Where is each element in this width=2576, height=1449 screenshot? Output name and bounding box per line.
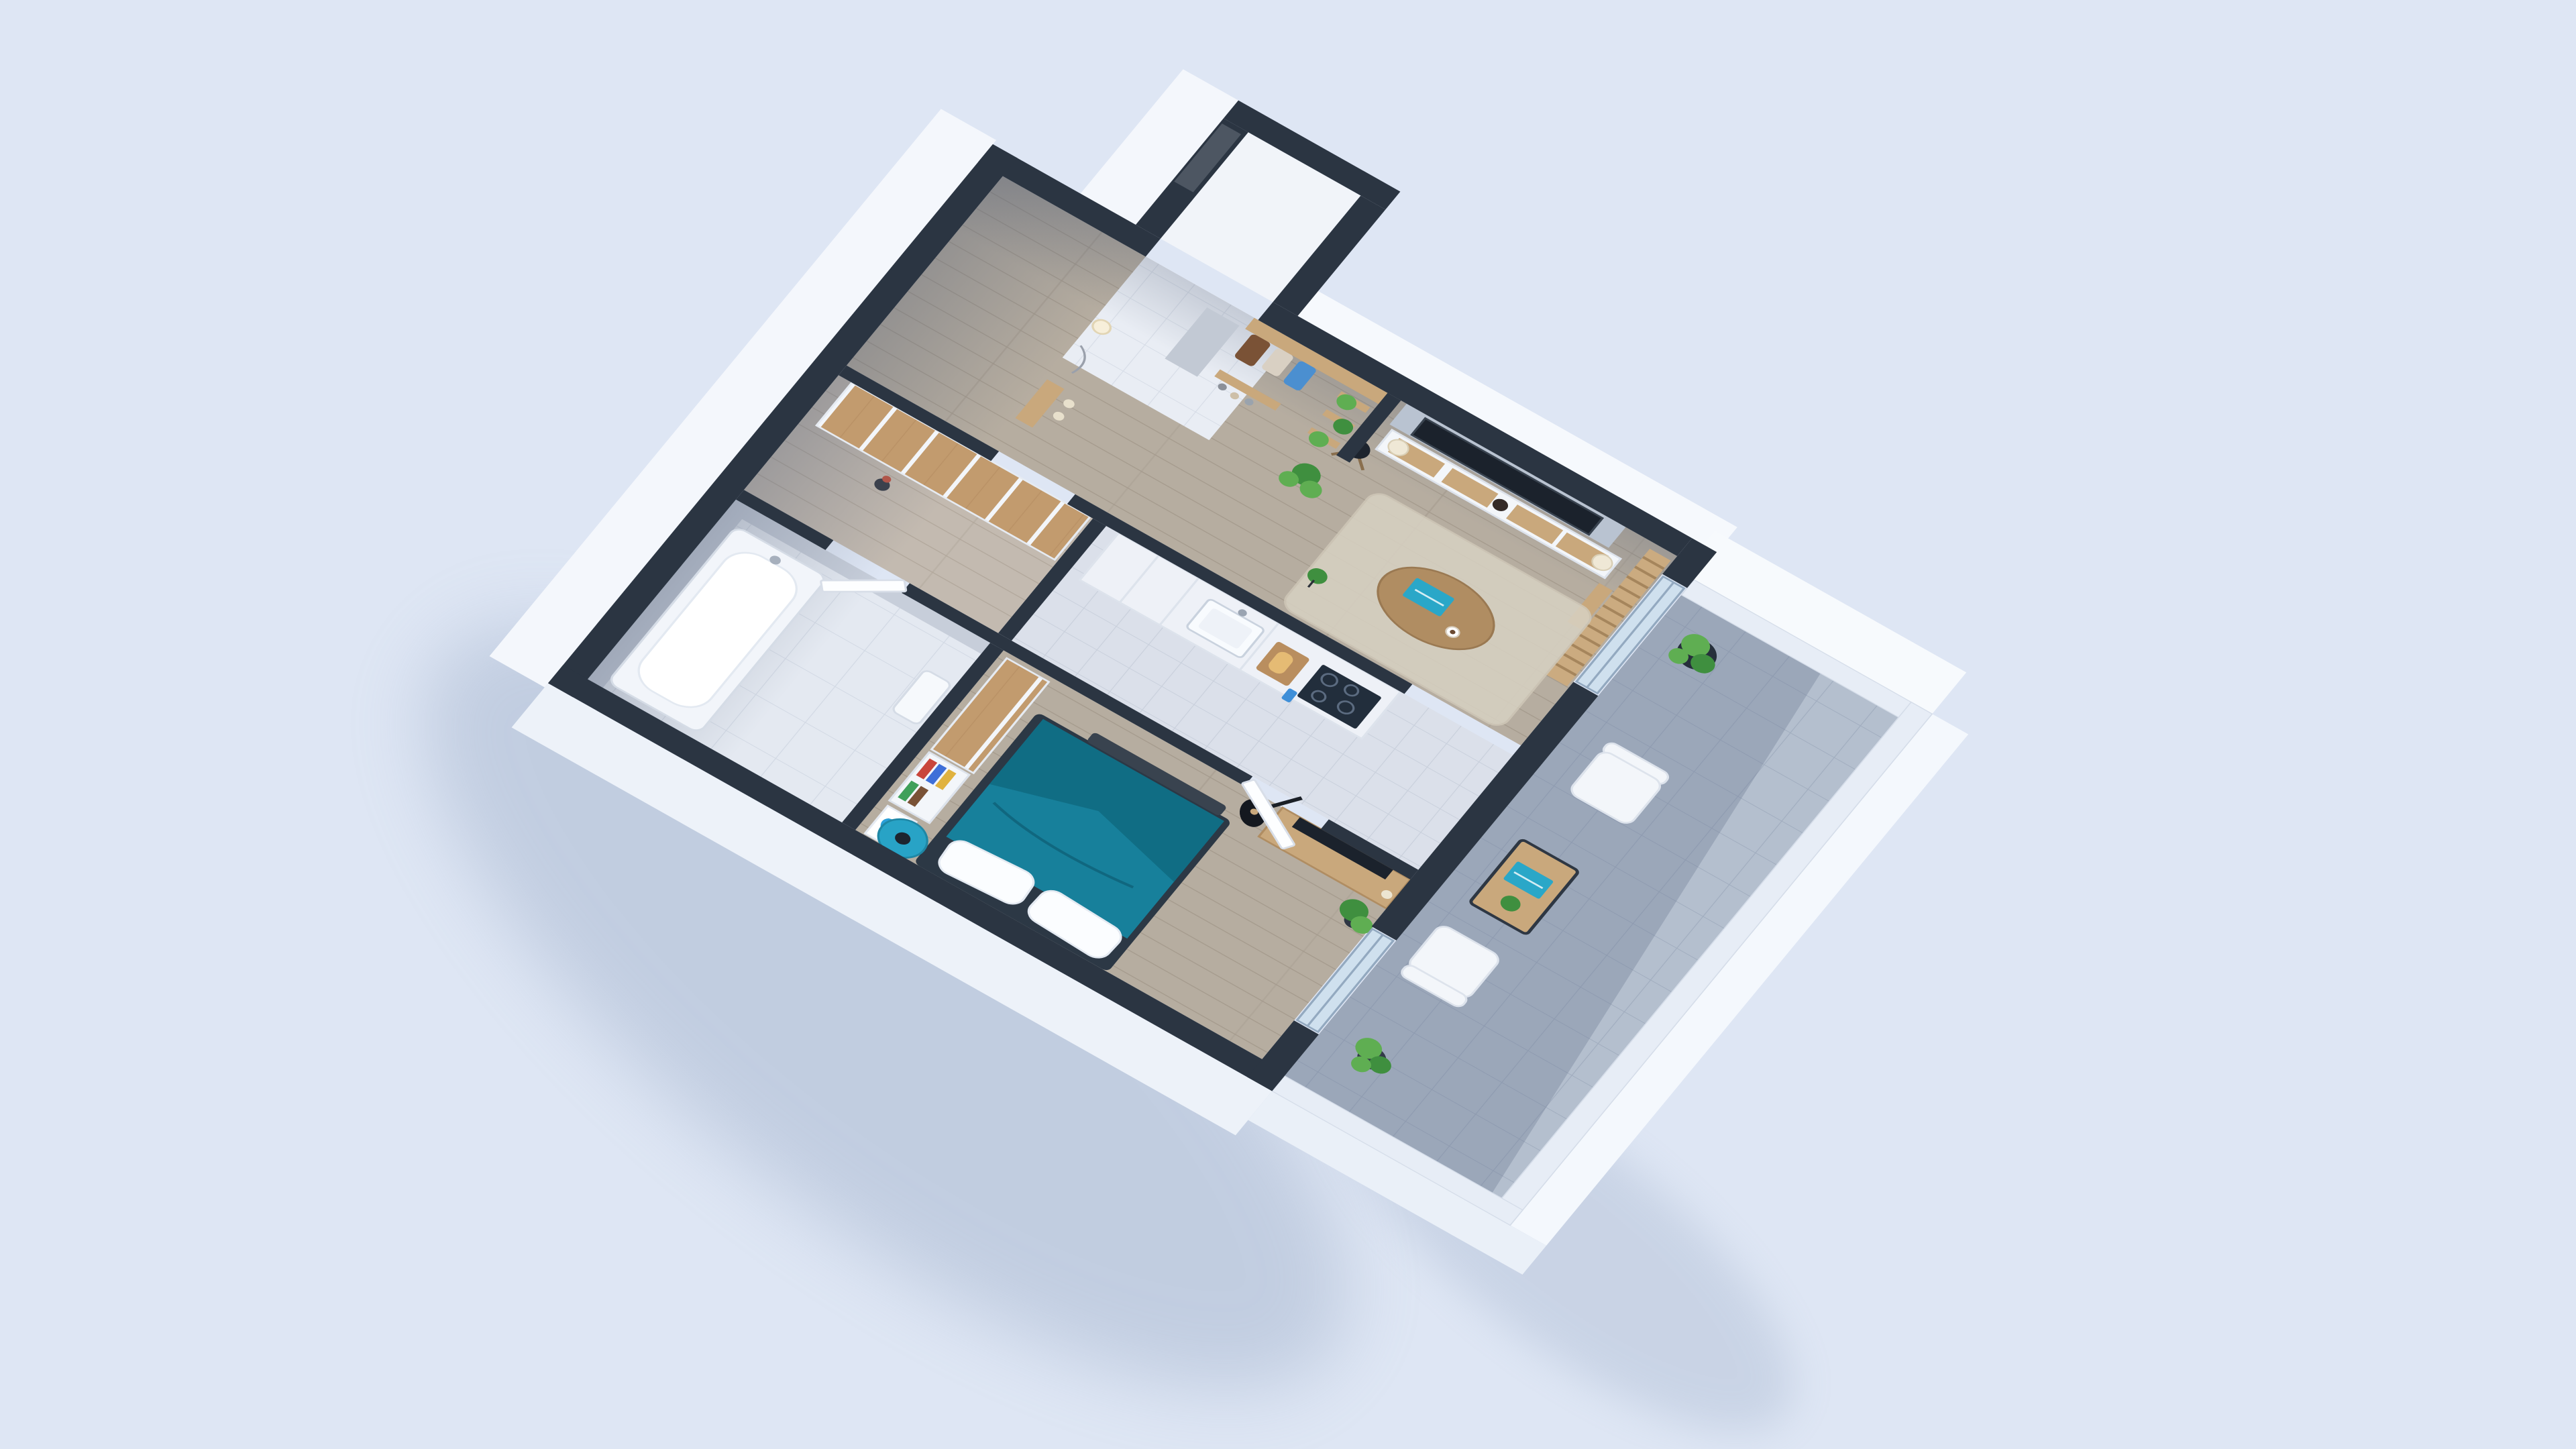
scene-canvas [0, 0, 2576, 1449]
bathroom-door-leaf [820, 580, 906, 592]
